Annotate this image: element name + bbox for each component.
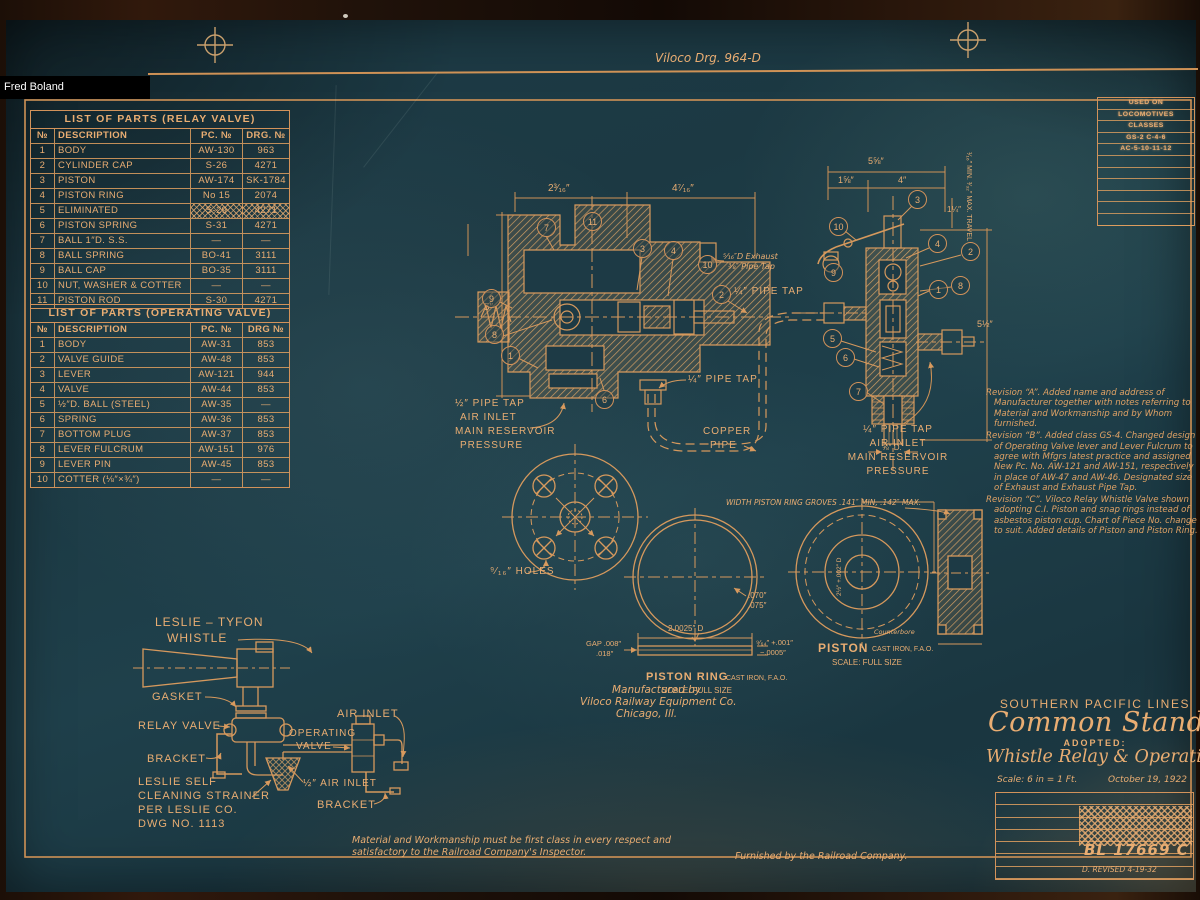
table-cell: BOTTOM PLUG — [55, 428, 191, 442]
table-cell: 853 — [243, 413, 289, 427]
table-cell: 8 — [31, 249, 55, 263]
table-row: 10COTTER (⅛″×¾″)—— — [31, 472, 289, 487]
table-cell: 9 — [31, 458, 55, 472]
drawing-title: Whistle Relay & Operating Valve — [986, 748, 1200, 767]
table-row: 3LEVERAW-121944 — [31, 367, 289, 382]
table-cell: — — [191, 234, 243, 248]
strainer-label-line4: DWG NO. 1113 — [138, 818, 225, 830]
table-cell: AW-36 — [191, 413, 243, 427]
operating-dim-right: 4″ — [898, 176, 906, 186]
table-row: 10NUT, WASHER & COTTER—— — [31, 278, 289, 293]
table-cell: 2 — [31, 159, 55, 173]
table-cell: 10 — [31, 473, 55, 487]
header-cell: DRG № — [243, 323, 289, 337]
table-row: 1BODYAW-31853 — [31, 337, 289, 352]
table-cell: LEVER PIN — [55, 458, 191, 472]
operating-inlet-label-line1: ¼″ PIPE TAP — [833, 424, 963, 435]
relay-valve-label: RELAY VALVE — [138, 720, 221, 732]
header-cell: № — [31, 323, 55, 337]
table-cell: PISTON RING — [55, 189, 191, 203]
table-cell: 853 — [243, 353, 289, 367]
pipe-tap-label-top: ¼″ PIPE TAP — [734, 286, 804, 297]
ring-gap-label-1: GAP .008″ — [586, 640, 621, 648]
operating-dim-left: 1⅝″ — [838, 176, 854, 186]
revision-notes: Revision “A”. Added name and address of … — [986, 388, 1198, 538]
table-cell: 976 — [243, 443, 289, 457]
table-cell: 5 — [31, 204, 55, 218]
operating-dim-small: 1¼″ — [947, 206, 961, 215]
exhaust-tap-label: ⅜″ Pipe Tap — [728, 263, 775, 272]
table-cell: 2 — [31, 353, 55, 367]
table-cell: 4271 — [243, 159, 289, 173]
used-on-line: LOCOMOTIVES — [1098, 110, 1194, 122]
relay-dim-right: 4⁷⁄₁₆″ — [672, 183, 694, 194]
operating-valve-label-line2: VALVE — [296, 741, 332, 752]
table-cell: 1 — [31, 338, 55, 352]
drawing-file-number: BL 17669 C — [1084, 842, 1189, 859]
leslie-tyfon-label: LESLIE – TYFON — [155, 616, 263, 629]
table-cell: S-29 — [191, 204, 243, 218]
piston-material: CAST IRON, F.A.O. — [872, 646, 933, 654]
used-on-line: AC-5-10-11-12 — [1098, 144, 1194, 156]
piston-ring-material: CAST IRON, F.A.O. — [726, 675, 787, 683]
table-cell: AW-31 — [191, 338, 243, 352]
ring-groove-note: WIDTH PISTON RING GROVES .141″ MIN, .142… — [726, 499, 921, 507]
table-cell: BALL CAP — [55, 264, 191, 278]
piston-caption: PISTON — [818, 642, 868, 655]
used-on-empty-row — [1098, 191, 1194, 203]
table-cell: 853 — [243, 458, 289, 472]
scale-note: Scale: 6 in = 1 Ft. — [997, 776, 1077, 786]
table-cell: 6 — [31, 219, 55, 233]
blueprint-photo: Fred Boland Viloco Drg. 964-D LIST OF PA… — [0, 0, 1200, 900]
revision-c: Revision “C”. Viloco Relay Whistle Valve… — [986, 495, 1198, 536]
bolt-holes-label: ⁹⁄₁₆″ HOLES — [490, 566, 555, 577]
relay-dim-left: 2³⁄₁₆″ — [548, 183, 570, 194]
table-cell: VALVE — [55, 383, 191, 397]
used-on-stamp-box: USED ONLOCOMOTIVESCLASSESGS-2 C-4-6AC-5-… — [1097, 97, 1195, 226]
table-cell: 4271 — [243, 219, 289, 233]
revised-date: D. REVISED 4-19-32 — [1082, 866, 1157, 874]
table-cell: LEVER FULCRUM — [55, 443, 191, 457]
travel-note: ¹⁄₁₆″ MIN. ³⁄₃₂″ MAX. TRAVEL — [964, 152, 972, 241]
pipe-tap-label-mid: ¼″ PIPE TAP — [688, 374, 758, 385]
table-cell: 4 — [31, 189, 55, 203]
table-row: 5ELIMINATEDS-294271 — [31, 203, 289, 218]
dust-speck — [343, 14, 348, 18]
operating-inlet-label-line4: PRESSURE — [833, 466, 963, 477]
table-row: 6SPRINGAW-36853 — [31, 412, 289, 427]
bracket-label-left: BRACKET — [147, 753, 206, 765]
part-list-title: LIST OF PARTS (OPERATING VALVE) — [31, 305, 289, 323]
table-cell: BODY — [55, 144, 191, 158]
table-cell: AW-121 — [191, 368, 243, 382]
table-cell: LEVER — [55, 368, 191, 382]
piston-side-dim: 2½″ +.002″ D — [836, 558, 843, 596]
table-cell: CYLINDER CAP — [55, 159, 191, 173]
table-cell: VALVE GUIDE — [55, 353, 191, 367]
exhaust-size-label: ⁵⁄₁₆″D Exhaust — [723, 253, 778, 262]
used-on-line: CLASSES — [1098, 121, 1194, 133]
relay-inlet-label-line4: PRESSURE — [460, 440, 523, 451]
table-cell: 944 — [243, 368, 289, 382]
piston-view — [788, 498, 992, 648]
strainer-label-line2: CLEANING STRAINER — [138, 790, 270, 802]
table-row: 6PISTON SPRINGS-314271 — [31, 218, 289, 233]
relay-inlet-label-line2: AIR INLET — [460, 412, 517, 423]
table-cell: No 15 — [191, 189, 243, 203]
used-on-empty-row — [1098, 156, 1194, 168]
operating-inlet-label-line3: MAIN RESERVOIR — [833, 452, 963, 463]
table-cell: AW-44 — [191, 383, 243, 397]
table-cell: — — [191, 279, 243, 293]
header-cell: DESCRIPTION — [55, 129, 191, 143]
used-on-line: USED ON — [1098, 98, 1194, 110]
photographer-credit: Fred Boland — [0, 76, 150, 99]
table-row: 1BODYAW-130963 — [31, 143, 289, 158]
table-row: 5½″D. BALL (STEEL)AW-35— — [31, 397, 289, 412]
table-cell: 7 — [31, 428, 55, 442]
table-cell: AW-48 — [191, 353, 243, 367]
relay-parts-table: LIST OF PARTS (RELAY VALVE)№DESCRIPTIONP… — [30, 110, 290, 309]
strainer-label-line1: LESLIE SELF — [138, 776, 217, 788]
manufacturer-line1: Manufactured by — [612, 685, 701, 697]
used-on-line: GS-2 C-4-6 — [1098, 133, 1194, 145]
ring-thickness-label-2: .075″ — [748, 602, 766, 611]
table-cell: BODY — [55, 338, 191, 352]
drawing-number: Viloco Drg. 964-D — [655, 52, 761, 65]
table-cell: — — [191, 473, 243, 487]
ring-gap-label-2: .018″ — [596, 650, 613, 658]
piston-scale: SCALE: FULL SIZE — [832, 659, 902, 668]
table-row: 9BALL CAPBO-353111 — [31, 263, 289, 278]
table-row: 7BOTTOM PLUGAW-37853 — [31, 427, 289, 442]
relay-inlet-label-line3: MAIN RESERVOIR — [455, 426, 556, 437]
operating-dim-total: 5⅝″ — [868, 157, 884, 167]
table-row: 8LEVER FULCRUMAW-151976 — [31, 442, 289, 457]
whistle-label: WHISTLE — [167, 632, 227, 645]
registration-marks — [197, 22, 986, 63]
table-cell: PISTON SPRING — [55, 219, 191, 233]
table-row: 7BALL 1″D. S.S.—— — [31, 233, 289, 248]
relay-inlet-label-line1: ½″ PIPE TAP — [455, 398, 525, 409]
gasket-label: GASKET — [152, 691, 203, 703]
counterbore-note: Counterbore — [874, 629, 915, 636]
table-cell: BO-35 — [191, 264, 243, 278]
table-cell: BO-41 — [191, 249, 243, 263]
header-cell: PC. № — [191, 323, 243, 337]
table-cell: COTTER (⅛″×¾″) — [55, 473, 191, 487]
strainer-label-line3: PER LESLIE CO. — [138, 804, 238, 816]
table-cell: AW-151 — [191, 443, 243, 457]
relay-dim-height: 5″ — [484, 302, 493, 313]
table-cell: 3 — [31, 368, 55, 382]
table-cell: 3 — [31, 174, 55, 188]
table-cell: 10 — [31, 279, 55, 293]
table-cell: 8 — [31, 443, 55, 457]
table-cell: NUT, WASHER & COTTER — [55, 279, 191, 293]
used-on-empty-row — [1098, 214, 1194, 226]
table-cell: BALL 1″D. S.S. — [55, 234, 191, 248]
operating-parts-table: LIST OF PARTS (OPERATING VALVE)№DESCRIPT… — [30, 304, 290, 488]
table-cell: AW-130 — [191, 144, 243, 158]
revision-b: Revision “B”. Added class GS-4. Changed … — [986, 431, 1198, 493]
table-cell: AW-174 — [191, 174, 243, 188]
part-list-title: LIST OF PARTS (RELAY VALVE) — [31, 111, 289, 129]
table-cell: AW-35 — [191, 398, 243, 412]
table-row: 4VALVEAW-44853 — [31, 382, 289, 397]
table-cell: 3111 — [243, 264, 289, 278]
manufacturer-line2: Viloco Railway Equipment Co. — [580, 697, 737, 709]
table-cell: SK-1784 — [243, 174, 289, 188]
ring-width-label-2: −.0005″ — [760, 649, 786, 657]
piston-ring-caption: PISTON RING — [646, 671, 728, 683]
table-cell: S-26 — [191, 159, 243, 173]
part-list-header: №DESCRIPTIONPC. №DRG. № — [31, 129, 289, 143]
table-cell: AW-45 — [191, 458, 243, 472]
table-cell: 4271 — [243, 204, 289, 218]
table-cell: 853 — [243, 338, 289, 352]
standard-title: Common Standard — [988, 708, 1200, 738]
furnished-note: Furnished by the Railroad Company. — [735, 852, 908, 862]
ring-width-label-1: ⁹⁄₆₄″ +.001″ — [756, 639, 793, 647]
bracket-label-right: BRACKET — [317, 799, 376, 811]
table-cell: ½″D. BALL (STEEL) — [55, 398, 191, 412]
used-on-empty-row — [1098, 202, 1194, 214]
copper-pipe-label-line2: PIPE — [710, 440, 737, 451]
adoption-date: October 19, 1922 — [1108, 776, 1187, 786]
operating-valve-label-line1: OPERATING — [289, 728, 356, 739]
used-on-empty-row — [1098, 179, 1194, 191]
table-cell: BALL SPRING — [55, 249, 191, 263]
table-cell: 963 — [243, 144, 289, 158]
table-cell: 7 — [31, 234, 55, 248]
manufacturer-line3: Chicago, Ill. — [616, 709, 677, 721]
table-cell: 853 — [243, 383, 289, 397]
table-cell: — — [243, 398, 289, 412]
copper-pipe-label-line1: COPPER — [703, 426, 751, 437]
table-cell: SPRING — [55, 413, 191, 427]
table-cell: — — [243, 234, 289, 248]
table-cell: 6 — [31, 413, 55, 427]
part-list-header: №DESCRIPTIONPC. №DRG № — [31, 323, 289, 337]
table-cell: 4 — [31, 383, 55, 397]
operating-inlet-label-line2: AIR INLET — [833, 438, 963, 449]
table-row: 9LEVER PINAW-45853 — [31, 457, 289, 472]
table-cell: 2074 — [243, 189, 289, 203]
table-cell: 9 — [31, 264, 55, 278]
table-cell: 5 — [31, 398, 55, 412]
table-row: 3PISTONAW-174SK-1784 — [31, 173, 289, 188]
table-cell: S-31 — [191, 219, 243, 233]
ring-thickness-label-1: .070″ — [748, 592, 766, 601]
ring-diameter-label: 2.0025″ D — [668, 625, 703, 634]
table-cell: PISTON — [55, 174, 191, 188]
revision-a: Revision “A”. Added name and address of … — [986, 388, 1198, 429]
table-cell: — — [243, 279, 289, 293]
workmanship-note: Material and Workmanship must be first c… — [352, 835, 700, 859]
header-cell: № — [31, 129, 55, 143]
table-cell: 853 — [243, 428, 289, 442]
header-cell: PC. № — [191, 129, 243, 143]
table-cell: 1 — [31, 144, 55, 158]
header-cell: DESCRIPTION — [55, 323, 191, 337]
air-inlet-label: AIR INLET — [337, 708, 399, 720]
header-cell: DRG. № — [243, 129, 289, 143]
table-cell: — — [243, 473, 289, 487]
used-on-empty-row — [1098, 168, 1194, 180]
table-cell: AW-37 — [191, 428, 243, 442]
operating-dim-height: 5½″ — [977, 320, 993, 330]
table-row: 8BALL SPRINGBO-413111 — [31, 248, 289, 263]
half-air-inlet-label: ½″ AIR INLET — [303, 778, 377, 789]
table-cell: ELIMINATED — [55, 204, 191, 218]
table-row: 4PISTON RINGNo 152074 — [31, 188, 289, 203]
voided-cells-hatch — [1079, 806, 1192, 846]
table-cell: 3111 — [243, 249, 289, 263]
table-row: 2VALVE GUIDEAW-48853 — [31, 352, 289, 367]
table-row: 2CYLINDER CAPS-264271 — [31, 158, 289, 173]
